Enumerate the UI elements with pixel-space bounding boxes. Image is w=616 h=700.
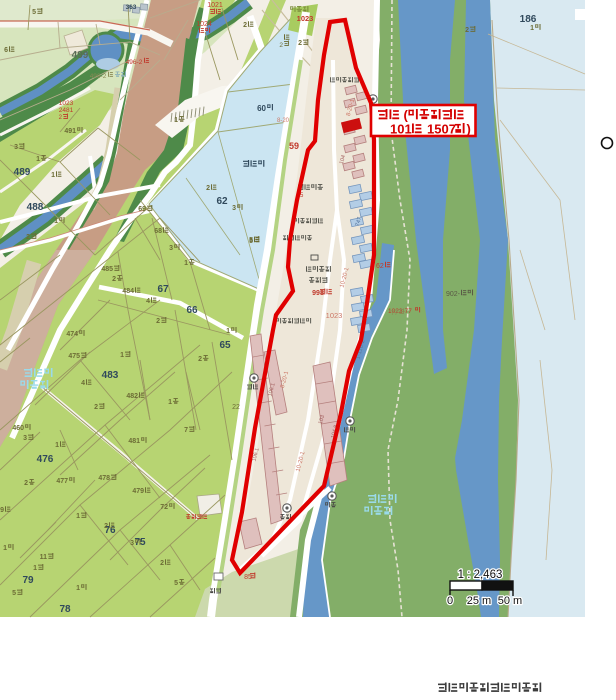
svg-text:484: 484 (122, 288, 134, 295)
svg-text:1: 1 (226, 328, 230, 335)
svg-text:65: 65 (219, 340, 231, 351)
svg-text:2: 2 (112, 276, 116, 283)
svg-text:186: 186 (520, 14, 537, 25)
svg-text:1: 1 (530, 25, 534, 32)
svg-text:1: 1 (3, 545, 7, 552)
svg-text:481: 481 (128, 438, 140, 445)
svg-text:7: 7 (184, 427, 188, 434)
svg-text:4: 4 (146, 298, 150, 305)
svg-text:3: 3 (169, 245, 173, 252)
svg-text:363: 363 (126, 4, 137, 11)
svg-text:489: 489 (14, 167, 31, 178)
svg-text:476: 476 (37, 454, 54, 465)
svg-text:78: 78 (59, 604, 71, 615)
svg-text:4: 4 (81, 380, 85, 387)
svg-text:1023: 1023 (59, 100, 74, 107)
svg-text:69: 69 (138, 206, 146, 213)
svg-text:1: 1 (54, 218, 58, 225)
svg-text:77: 77 (391, 310, 399, 317)
svg-text:2: 2 (198, 356, 202, 363)
svg-text:101: 101 (390, 122, 412, 137)
svg-text:79: 79 (22, 575, 34, 586)
svg-text:483: 483 (102, 370, 119, 381)
svg-text:2481: 2481 (59, 107, 74, 114)
svg-text:496-2: 496-2 (90, 73, 107, 80)
svg-text:59: 59 (0, 507, 4, 514)
svg-text:72: 72 (160, 504, 168, 511)
svg-text:67: 67 (157, 284, 169, 295)
svg-text:1021: 1021 (207, 2, 223, 9)
svg-text:1 : 2,463: 1 : 2,463 (458, 569, 503, 581)
svg-text:5: 5 (249, 238, 253, 245)
svg-text:478: 478 (98, 475, 110, 482)
svg-text:2: 2 (156, 318, 160, 325)
svg-text:0: 0 (447, 595, 453, 607)
svg-text:59: 59 (289, 141, 299, 151)
svg-text:1: 1 (36, 156, 40, 163)
svg-text:3: 3 (23, 435, 27, 442)
svg-text:2: 2 (465, 27, 469, 34)
svg-text:2: 2 (104, 523, 108, 530)
svg-text:62: 62 (216, 196, 228, 207)
svg-text:5: 5 (174, 580, 178, 587)
svg-text:1: 1 (55, 442, 59, 449)
svg-text:5: 5 (32, 9, 36, 16)
svg-text:3: 3 (130, 540, 134, 547)
svg-text:482: 482 (126, 393, 138, 400)
svg-text:2: 2 (243, 22, 247, 29)
svg-text:475: 475 (68, 353, 80, 360)
svg-text:460: 460 (12, 425, 24, 432)
svg-text:1: 1 (168, 399, 172, 406)
svg-text:50 m: 50 m (498, 595, 522, 607)
svg-text:2: 2 (298, 40, 302, 47)
svg-text:68: 68 (154, 228, 162, 235)
svg-text:1: 1 (174, 117, 178, 124)
svg-text:477: 477 (56, 478, 68, 485)
svg-text:1: 1 (184, 260, 188, 267)
svg-text:66: 66 (186, 305, 198, 316)
svg-text:3: 3 (232, 205, 236, 212)
svg-text:2: 2 (26, 234, 30, 241)
svg-text:(: ( (404, 108, 409, 123)
svg-text:1: 1 (76, 585, 80, 592)
svg-text:1507: 1507 (427, 122, 456, 137)
svg-text:491: 491 (64, 128, 76, 135)
svg-text:1: 1 (51, 172, 55, 179)
svg-text:6: 6 (4, 47, 8, 54)
svg-text:902-: 902- (446, 291, 461, 298)
svg-text:479: 479 (132, 488, 144, 495)
svg-text:2: 2 (160, 560, 164, 567)
svg-text:): ) (467, 122, 471, 137)
svg-text:3: 3 (14, 144, 18, 151)
svg-text:1024: 1024 (196, 21, 212, 28)
svg-text:1023: 1023 (297, 14, 314, 23)
svg-text:8-20: 8-20 (277, 118, 290, 124)
svg-text:499: 499 (72, 50, 89, 61)
svg-text:5: 5 (12, 590, 16, 597)
svg-text:488: 488 (27, 202, 44, 213)
svg-text:2: 2 (24, 480, 28, 487)
svg-text:2: 2 (94, 404, 98, 411)
svg-text:25 m: 25 m (467, 595, 491, 607)
svg-text:60: 60 (257, 104, 266, 113)
svg-text:22: 22 (232, 404, 240, 411)
svg-text:1023: 1023 (326, 311, 343, 320)
svg-text:11: 11 (40, 554, 48, 561)
svg-text:496-2: 496-2 (126, 59, 143, 66)
svg-text:2: 2 (279, 42, 283, 49)
svg-text:485: 485 (101, 266, 113, 273)
svg-text:1: 1 (120, 352, 124, 359)
svg-text:474: 474 (66, 331, 78, 338)
svg-text:62: 62 (376, 263, 384, 270)
svg-text:1: 1 (33, 565, 37, 572)
svg-text:1: 1 (76, 513, 80, 520)
svg-text:2: 2 (206, 185, 210, 192)
